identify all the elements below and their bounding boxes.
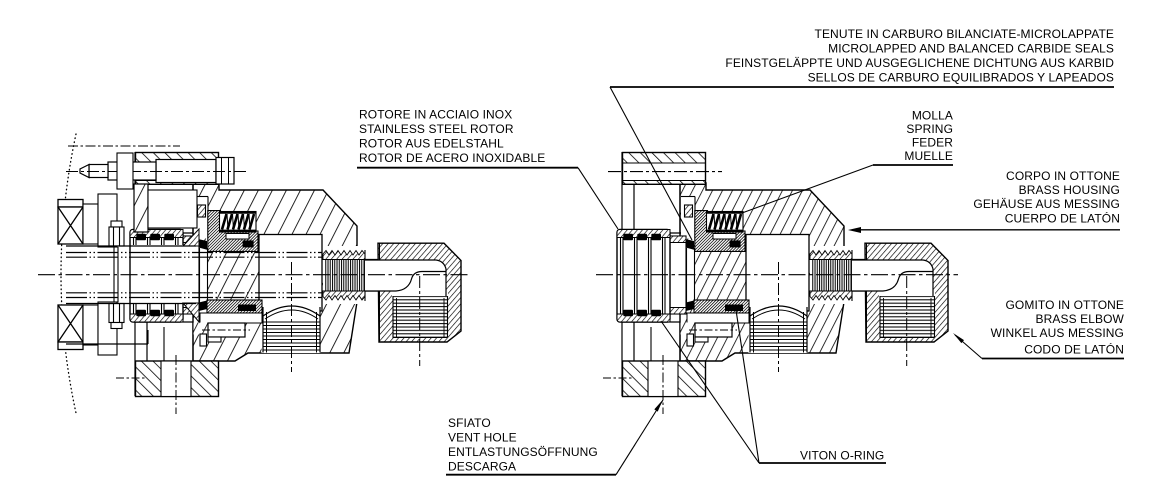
svg-text:DESCARGA: DESCARGA [448, 460, 516, 474]
svg-text:MICROLAPPED AND BALANCED CARBI: MICROLAPPED AND BALANCED CARBIDE SEALS [828, 42, 1114, 56]
svg-text:ROTOR DE ACERO INOXIDABLE: ROTOR DE ACERO INOXIDABLE [359, 151, 545, 165]
svg-text:VITON O-RING: VITON O-RING [800, 449, 884, 463]
svg-text:CUERPO DE LATÓN: CUERPO DE LATÓN [1005, 211, 1120, 226]
svg-text:STAINLESS STEEL ROTOR: STAINLESS STEEL ROTOR [359, 122, 514, 136]
svg-text:GEHÄUSE AUS MESSING: GEHÄUSE AUS MESSING [973, 197, 1120, 211]
svg-text:MOLLA: MOLLA [912, 109, 953, 123]
svg-text:SPRING: SPRING [906, 122, 953, 136]
svg-text:ROTORE IN ACCIAIO INOX: ROTORE IN ACCIAIO INOX [359, 108, 512, 122]
svg-text:CODO DE LATÓN: CODO DE LATÓN [1024, 342, 1124, 357]
svg-text:SFIATO: SFIATO [448, 416, 491, 430]
svg-text:BRASS HOUSING: BRASS HOUSING [1019, 183, 1120, 197]
svg-text:ENTLASTUNGSÖFFNUNG: ENTLASTUNGSÖFFNUNG [448, 445, 598, 459]
svg-text:BRASS ELBOW: BRASS ELBOW [1036, 312, 1125, 326]
svg-text:SELLOS DE CARBURO EQUILIBRADOS: SELLOS DE CARBURO EQUILIBRADOS Y LAPEADO… [808, 71, 1114, 85]
svg-text:TENUTE IN CARBURO BILANCIATE-M: TENUTE IN CARBURO BILANCIATE-MICROLAPPAT… [815, 27, 1114, 41]
svg-text:FEINSTGELÄPPTE UND AUSGEGLICHE: FEINSTGELÄPPTE UND AUSGEGLICHENE DICHTUN… [725, 56, 1114, 70]
svg-text:GOMITO IN OTTONE: GOMITO IN OTTONE [1006, 298, 1125, 312]
svg-text:WINKEL AUS MESSING: WINKEL AUS MESSING [991, 326, 1124, 340]
svg-text:VENT HOLE: VENT HOLE [448, 431, 517, 445]
svg-text:MUELLE: MUELLE [904, 149, 953, 163]
svg-text:ROTOR AUS EDELSTAHL: ROTOR AUS EDELSTAHL [359, 137, 504, 151]
svg-text:FEDER: FEDER [912, 136, 953, 150]
svg-text:CORPO IN OTTONE: CORPO IN OTTONE [1006, 169, 1120, 183]
